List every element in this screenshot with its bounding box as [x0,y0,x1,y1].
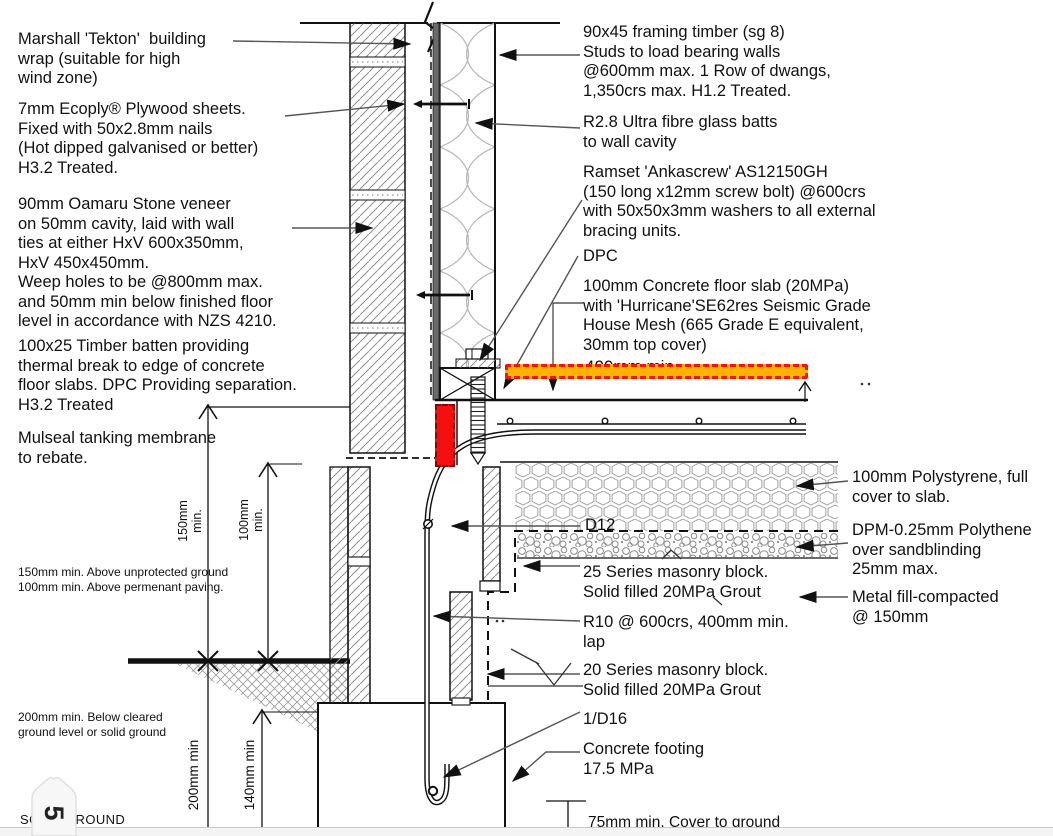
label-r10-rebar: R10 @ 600crs, 400mm min. lap [583,613,789,652]
seismic-mesh [497,418,806,424]
label-concrete-footing: Concrete footing 17.5 MPa [583,740,704,779]
plywood-sheet [433,23,439,400]
label-1d16: 1/D16 [583,710,627,730]
highlight-bar [505,364,808,379]
d16-bar-section [429,787,437,795]
label-ecoply: 7mm Ecoply® Plywood sheets. Fixed with 5… [18,100,258,178]
label-framing-timber: 90x45 framing timber (sg 8) Studs to loa… [583,23,831,101]
label-oamaru-veneer: 90mm Oamaru Stone veneer on 50mm cavity,… [18,195,277,332]
sand-blinding-layer [517,533,838,558]
label-20-series-block: 20 Series masonry block. Solid filled 20… [583,661,768,700]
construction-detail-page: 400mm min Marshall 'Tekton' building wra… [0,0,1053,836]
label-25-series-block: 25 Series masonry block. Solid filled 20… [583,563,768,602]
label-dpm: DPM-0.25mm Polythene over sandblinding 2… [852,521,1032,580]
label-timber-batten: 100x25 Timber batten providing thermal b… [18,337,297,415]
dim-140mm-min: 140mm min [243,735,257,815]
d12-bar-section [423,519,433,529]
label-concrete-slab: 100mm Concrete floor slab (20MPa) with '… [583,277,871,355]
stud-insulation-batts [440,23,495,368]
label-d12: D12 [585,516,615,536]
label-metal-fill: Metal fill-compacted @ 150mm [852,588,999,627]
stone-veneer [346,23,440,458]
dim-150mm-min: 150mm min. [176,481,204,561]
polystyrene-layer [515,463,838,531]
masonry-blocks [330,467,500,705]
concrete-footing [318,703,505,834]
label-polystyrene: 100mm Polystyrene, full cover to slab. [852,468,1028,507]
page-edge-strip [0,827,1053,836]
bottom-plate [440,368,495,400]
highlight-red-rect [435,404,455,467]
marker-5-badge: 5 [30,776,78,836]
label-dpc: DPC [583,247,618,267]
dim-100mm-min: 100mm min. [237,480,265,560]
marker-number: 5 [39,805,69,820]
label-ramset-anchor: Ramset 'Ankascrew' AS12150GH (150 long x… [583,163,876,241]
label-above-ground: 150mm min. Above unprotected ground 100m… [18,565,228,594]
label-building-wrap: Marshall 'Tekton' building wrap (suitabl… [18,30,206,89]
label-mulseal: Mulseal tanking membrane to rebate. [18,429,216,468]
label-below-ground: 200mm min. Below cleared ground level or… [18,710,166,739]
wall-top-cut-line [300,2,560,52]
dim-200mm-min: 200mm min [187,735,201,815]
label-glass-batts: R2.8 Ultra fibre glass batts to wall cav… [583,113,777,152]
